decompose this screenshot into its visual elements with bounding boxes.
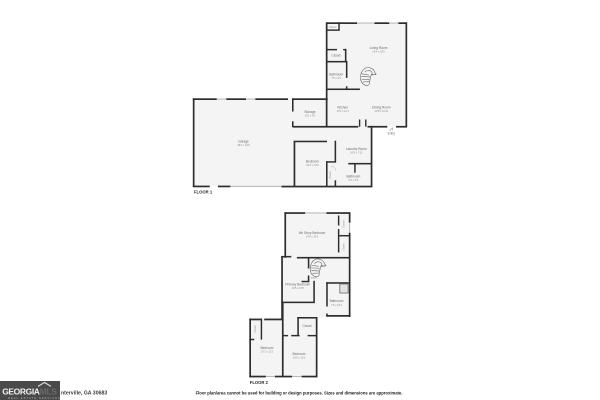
svg-text:Closet: Closet (341, 220, 345, 228)
svg-text:7'6 x 10'1: 7'6 x 10'1 (331, 303, 342, 307)
svg-text:10'1 x 8'1: 10'1 x 8'1 (305, 114, 316, 118)
svg-text:stairs: stairs (311, 275, 318, 279)
svg-text:Living Room: Living Room (370, 46, 388, 50)
svg-text:Closet: Closet (302, 324, 311, 328)
svg-text:10'5 x 11'2: 10'5 x 11'2 (293, 356, 306, 360)
svg-text:Kitchen: Kitchen (337, 106, 348, 110)
svg-text:Closet: Closet (253, 325, 257, 333)
svg-text:Entry: Entry (388, 131, 396, 135)
svg-text:Bathroom: Bathroom (329, 73, 343, 77)
svg-text:Closet: Closet (331, 54, 340, 58)
svg-text:Floor plan/area cannot be used: Floor plan/area cannot be used for build… (196, 390, 403, 395)
svg-text:REAL ESTATE SERVICES: REAL ESTATE SERVICES (8, 396, 61, 400)
svg-text:Storage: Storage (304, 110, 315, 114)
svg-text:13'8 x 11'10: 13'8 x 11'10 (374, 109, 388, 113)
svg-text:Garage: Garage (238, 139, 249, 143)
svg-text:5'6 x 6'5: 5'6 x 6'5 (349, 178, 359, 182)
svg-text:10'9 x 13'6: 10'9 x 13'6 (306, 163, 319, 167)
svg-text:Laundry Room: Laundry Room (346, 147, 367, 151)
svg-text:Bathroom: Bathroom (330, 299, 344, 303)
svg-text:Bedroom: Bedroom (293, 352, 306, 356)
svg-text:13'5 x 10'5: 13'5 x 10'5 (292, 286, 305, 290)
svg-text:Primary Bedroom: Primary Bedroom (285, 282, 310, 286)
svg-text:MLS: MLS (40, 387, 57, 397)
svg-text:FLOOR 2: FLOOR 2 (250, 380, 269, 385)
svg-text:Dining Room: Dining Room (372, 105, 391, 109)
svg-text:14'9 x 13'2: 14'9 x 13'2 (306, 235, 319, 239)
svg-text:Bedroom: Bedroom (261, 346, 274, 350)
svg-text:10'1 x 11'1: 10'1 x 11'1 (337, 109, 350, 113)
svg-text:FLOOR 1: FLOOR 1 (194, 190, 213, 195)
svg-text:16'4 x 18'5: 16'4 x 18'5 (372, 50, 385, 54)
svg-text:10'8 x 7'11: 10'8 x 7'11 (350, 150, 363, 154)
svg-text:4th Story Bedroom: 4th Story Bedroom (299, 231, 326, 235)
svg-text:Bathroom: Bathroom (346, 175, 360, 179)
svg-text:GEORGIA: GEORGIA (2, 387, 40, 397)
svg-text:28'4 x 24'6: 28'4 x 24'6 (237, 143, 250, 147)
svg-text:7'5 x 5'1: 7'5 x 5'1 (331, 76, 341, 80)
svg-text:Closet: Closet (328, 171, 332, 179)
svg-text:Bedroom: Bedroom (306, 160, 319, 164)
svg-text:Closet: Closet (329, 25, 337, 29)
svg-text:Closet: Closet (341, 243, 345, 251)
svg-text:10'1 x 11'2: 10'1 x 11'2 (261, 350, 274, 354)
svg-text:nterville, GA 30683: nterville, GA 30683 (61, 390, 107, 396)
